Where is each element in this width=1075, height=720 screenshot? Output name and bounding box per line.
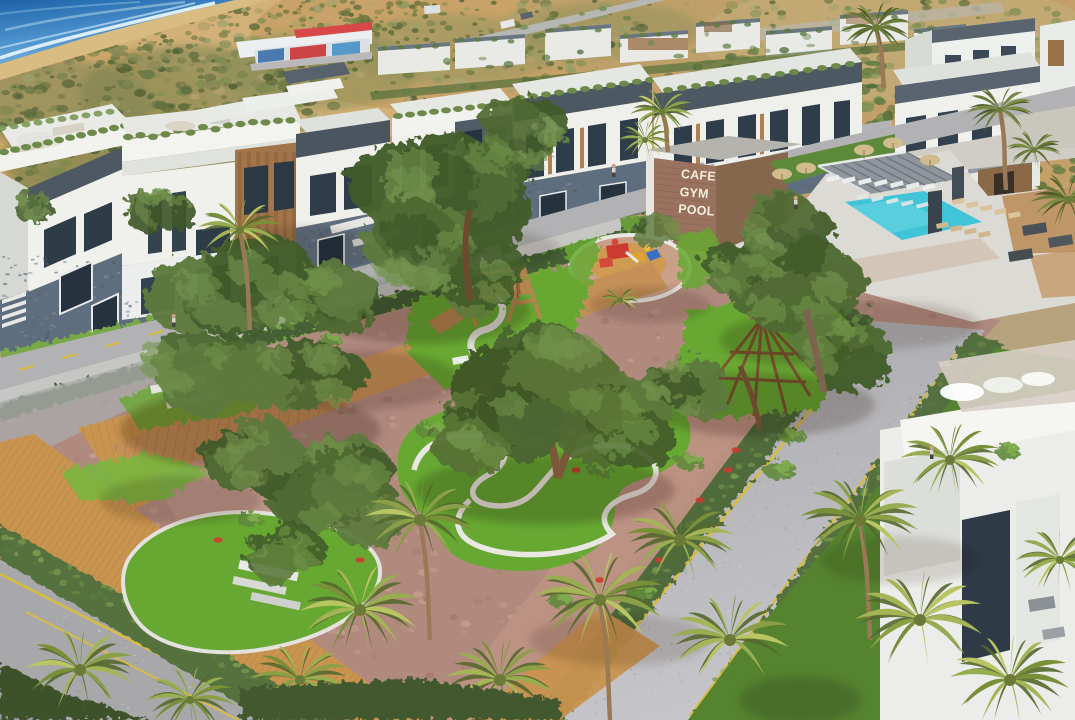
svg-text:GYM: GYM: [679, 185, 709, 201]
svg-text:CAFE: CAFE: [681, 167, 717, 184]
svg-text:POOL: POOL: [678, 202, 715, 219]
